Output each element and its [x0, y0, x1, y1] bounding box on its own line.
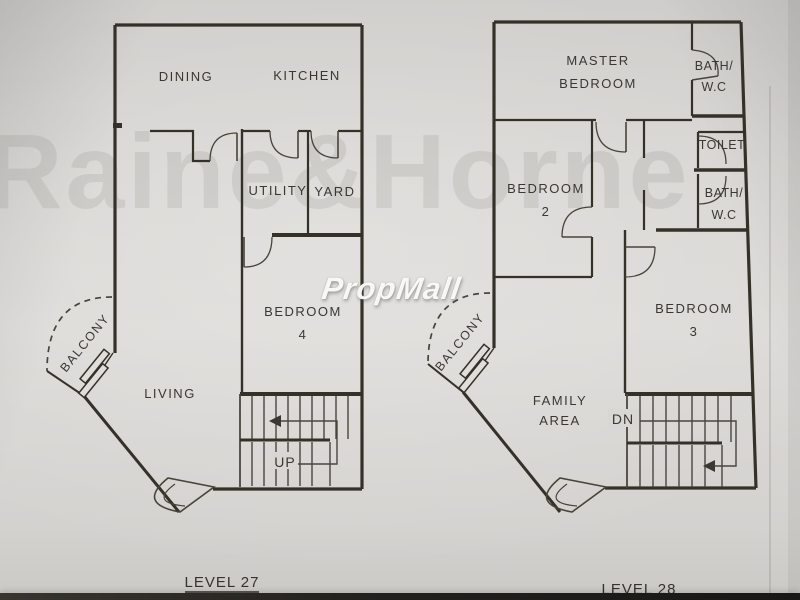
room-label-master: MASTER: [566, 53, 629, 68]
room-label-master-2: BEDROOM: [559, 76, 637, 91]
arrowhead-icon: [269, 415, 281, 427]
outer-walls: [463, 22, 756, 512]
inner-walls: [150, 129, 362, 394]
room-label-yard: YARD: [314, 184, 355, 199]
room-label-bedroom3-number: 3: [690, 324, 699, 339]
portal-watermark: PropMall: [319, 271, 463, 307]
caption-level-27: LEVEL 27: [185, 574, 260, 592]
room-label-kitchen: KITCHEN: [273, 68, 341, 83]
door-bedroom2: [562, 207, 592, 237]
room-label-family: FAMILY: [533, 393, 587, 408]
room-label-bedroom4-number: 4: [299, 327, 308, 342]
room-label-bath-mid-2: W.C: [711, 208, 736, 222]
paper-crease: [769, 86, 771, 600]
room-label-bedroom2-number: 2: [542, 204, 551, 219]
room-label-bath-top: BATH/: [695, 59, 733, 73]
room-label-bath-mid: BATH/: [705, 186, 743, 200]
room-label-utility: UTILITY: [249, 183, 308, 198]
room-label-bedroom3: BEDROOM: [655, 301, 733, 316]
floor-plan-level-28: DN MASTER BEDROOM BATH/ W.C TOILET BATH/…: [428, 22, 756, 599]
doors: [155, 131, 338, 512]
wall-tick: [113, 123, 122, 128]
entrance-door-fan: [547, 478, 606, 512]
door-yard: [311, 131, 338, 158]
floor-plan-level-27: UP DINING KITCHEN UTILITY YARD BEDROOM 4…: [47, 25, 362, 592]
room-label-family-2: AREA: [539, 413, 580, 428]
floorplan-photo: Raine&Horne: [0, 0, 800, 600]
room-label-toilet: TOILET: [699, 138, 746, 152]
room-label-up: UP: [274, 454, 295, 470]
room-label-bath-top-2: W.C: [701, 80, 726, 94]
door-bedroom3: [625, 247, 655, 277]
staircase-right: DN: [608, 394, 736, 488]
room-label-bedroom2: BEDROOM: [507, 181, 585, 196]
door-utility: [270, 131, 298, 158]
paper-edge-shadow: [788, 0, 800, 600]
door-bedroom4: [244, 237, 272, 267]
room-label-living: LIVING: [144, 386, 196, 401]
door-dining: [210, 133, 237, 161]
room-label-dining: DINING: [159, 69, 214, 84]
staircase-left: UP: [240, 394, 348, 487]
door-master-bedroom: [596, 122, 626, 152]
room-label-dn: DN: [612, 411, 634, 427]
plan-caption: LEVEL 27: [185, 574, 260, 591]
photo-bottom-edge: [0, 593, 800, 600]
